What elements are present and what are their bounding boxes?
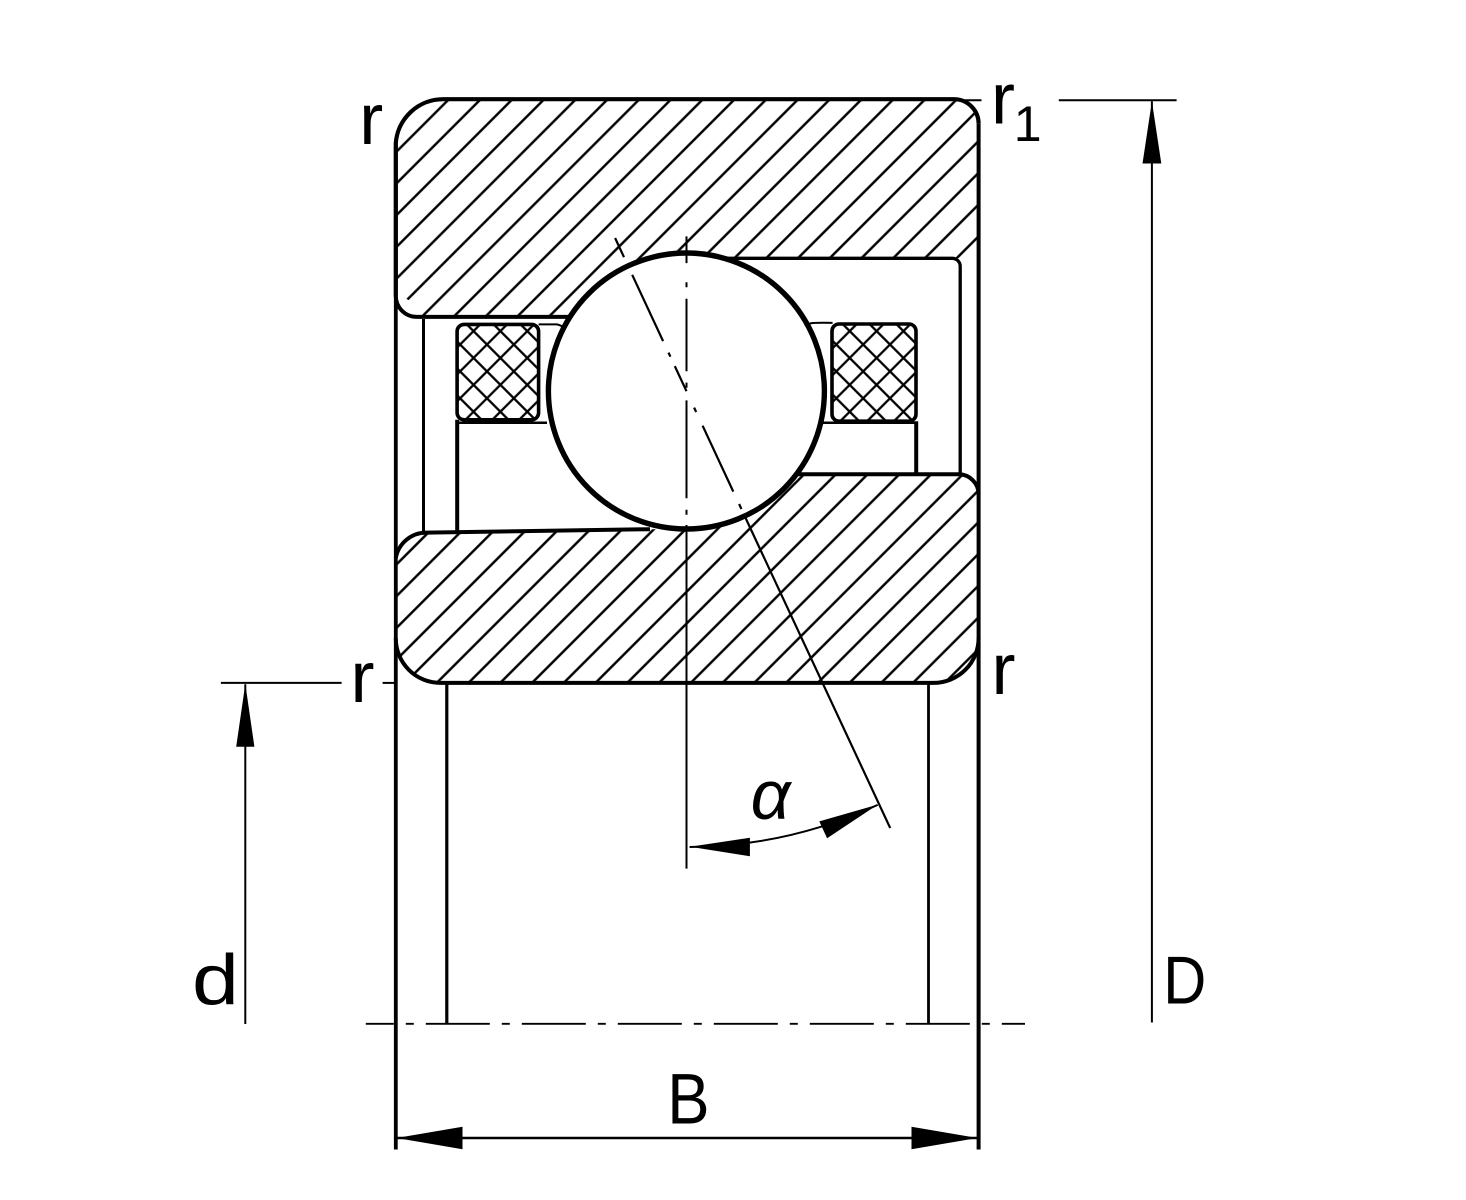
svg-text:B: B	[667, 1061, 709, 1140]
svg-text:r: r	[359, 80, 383, 160]
svg-text:d: d	[192, 942, 239, 1021]
svg-text:α: α	[751, 756, 793, 834]
svg-text:r: r	[991, 59, 1015, 139]
svg-text:r: r	[992, 630, 1016, 710]
svg-text:1: 1	[1014, 96, 1042, 152]
svg-text:D: D	[1163, 942, 1206, 1018]
svg-text:r: r	[351, 638, 375, 718]
